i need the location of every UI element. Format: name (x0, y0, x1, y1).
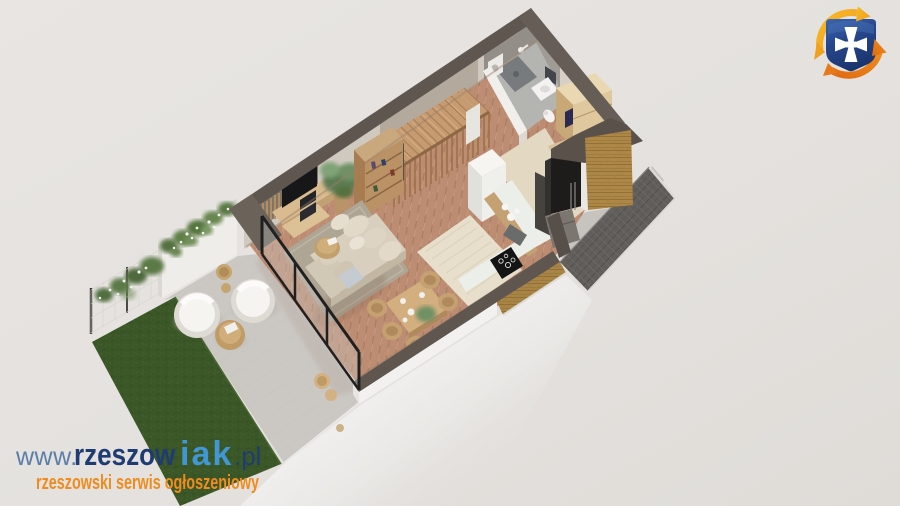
svg-text:www.: www. (15, 443, 78, 471)
svg-text:.pl: .pl (234, 441, 261, 471)
svg-text:rzeszow: rzeszow (74, 438, 176, 473)
svg-text:rzeszowski serwis ogłoszeniowy: rzeszowski serwis ogłoszeniowy (36, 471, 259, 494)
svg-text:iak: iak (180, 435, 233, 473)
